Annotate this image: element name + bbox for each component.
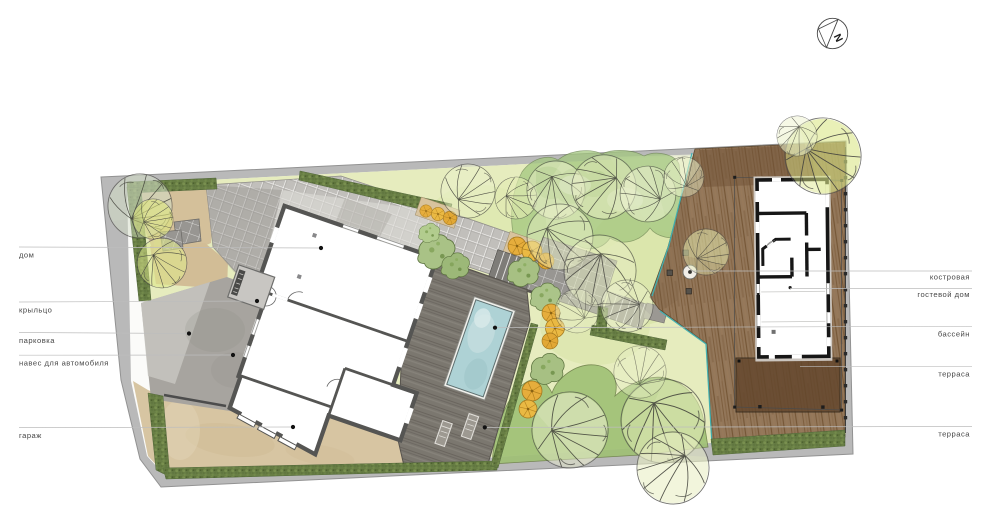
svg-text:гараж: гараж — [19, 431, 42, 440]
svg-text:терраса: терраса — [938, 430, 970, 439]
svg-text:N: N — [831, 32, 845, 44]
svg-text:парковка: парковка — [19, 336, 55, 345]
svg-text:навес для автомобиля: навес для автомобиля — [19, 359, 109, 368]
svg-text:бассейн: бассейн — [938, 330, 970, 339]
svg-text:терраса: терраса — [938, 370, 970, 379]
svg-text:гостевой дом: гостевой дом — [917, 290, 970, 299]
svg-text:крыльцо: крыльцо — [19, 306, 52, 315]
svg-text:костровая: костровая — [930, 273, 970, 282]
svg-text:дом: дом — [19, 251, 34, 260]
